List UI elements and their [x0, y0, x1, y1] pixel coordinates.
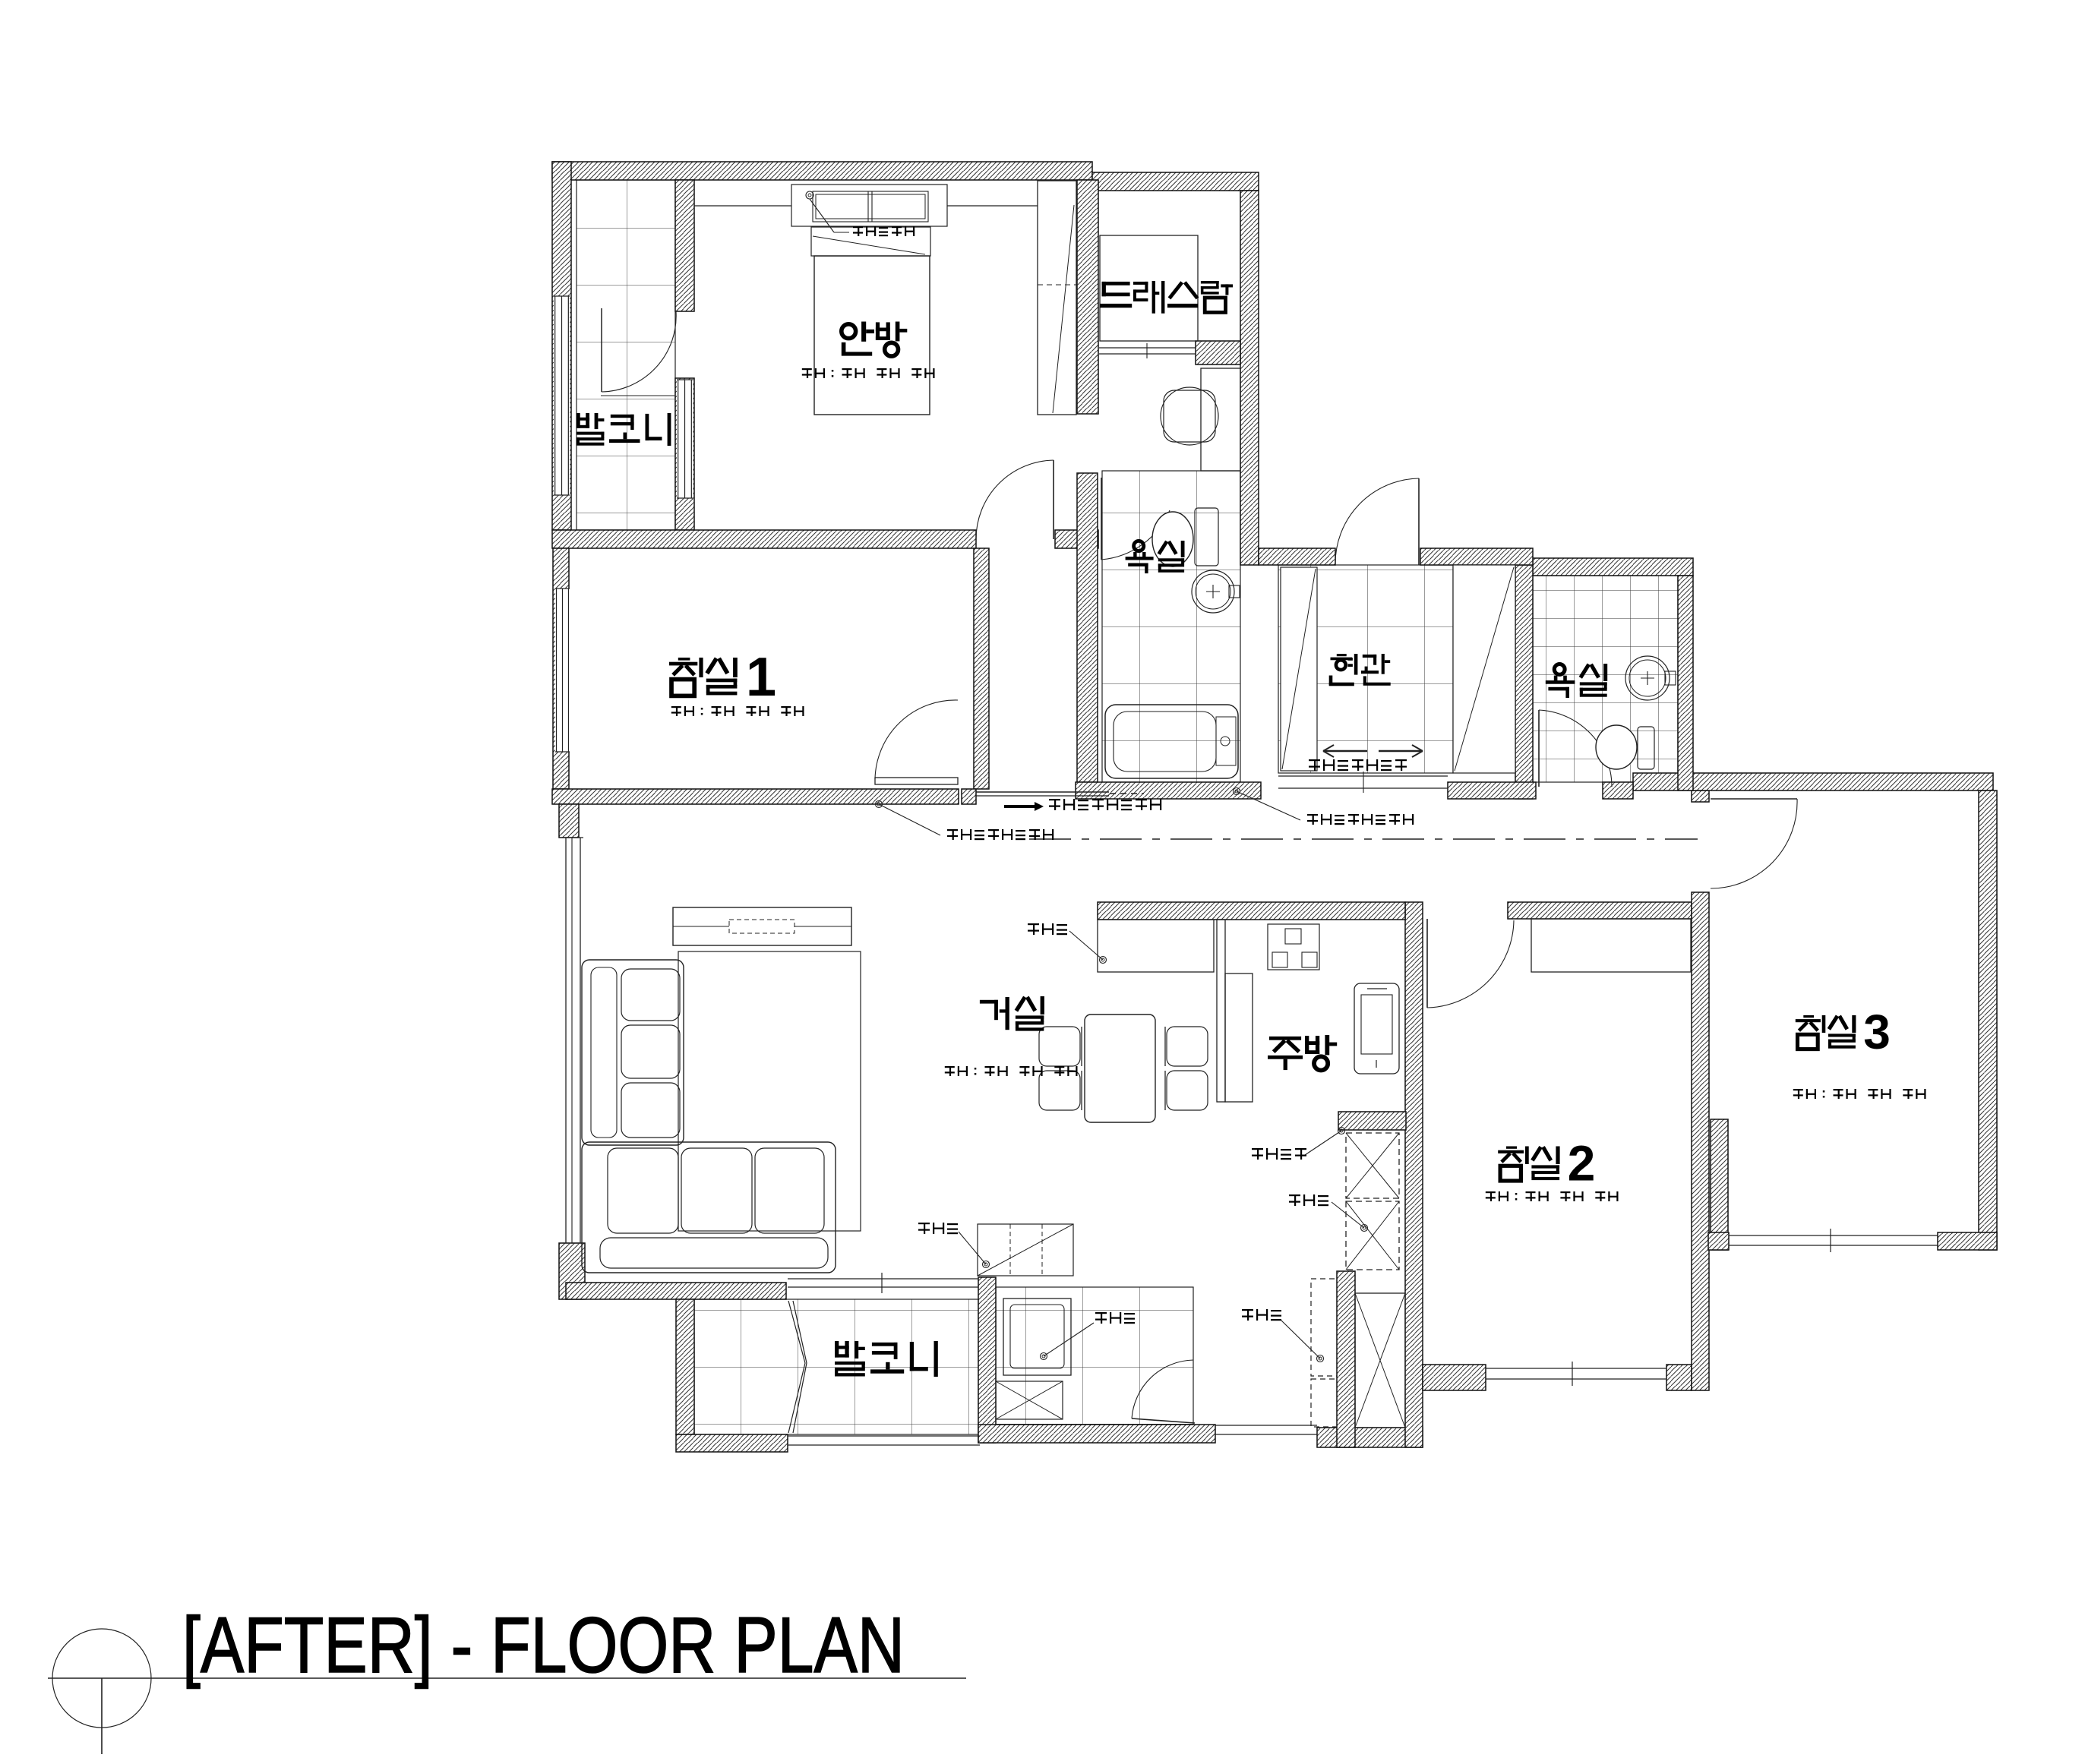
svg-text:[AFTER] - FLOOR PLAN: [AFTER] - FLOOR PLAN: [182, 1601, 905, 1690]
svg-text:2: 2: [1568, 1135, 1596, 1191]
svg-text:1: 1: [746, 647, 776, 708]
svg-text:3: 3: [1863, 1005, 1891, 1059]
